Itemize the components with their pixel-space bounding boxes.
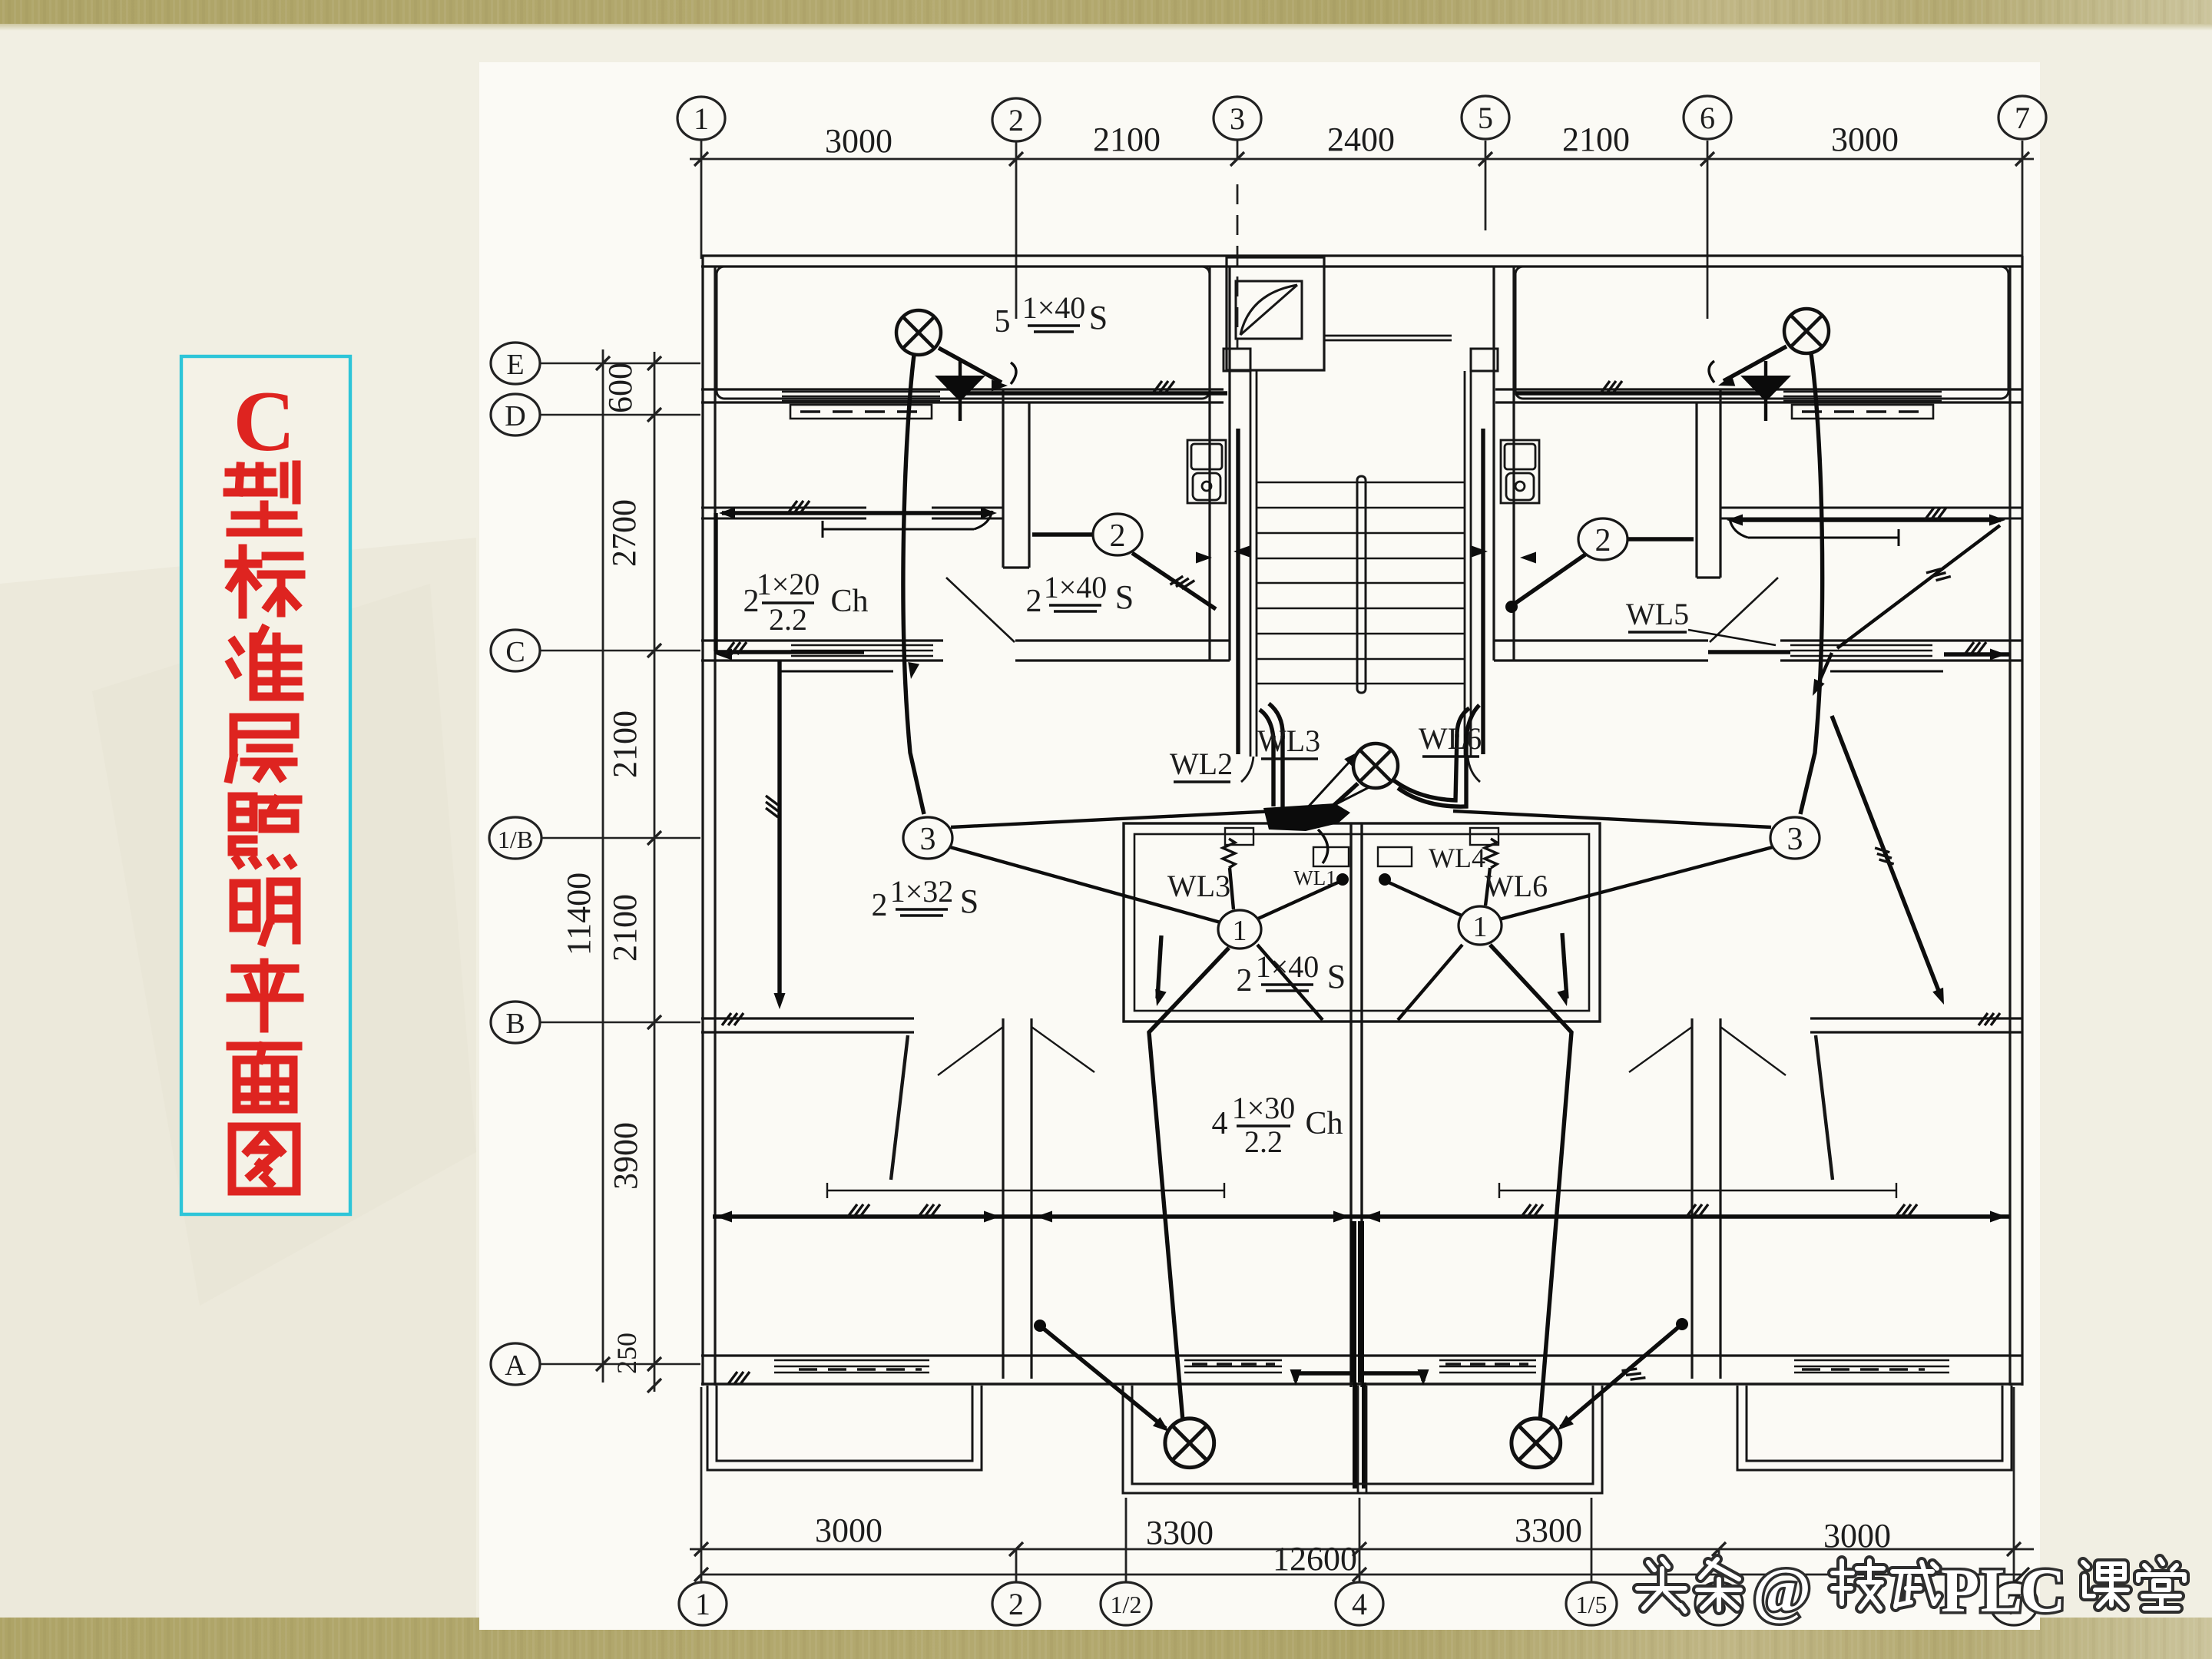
svg-text:WL1: WL1 <box>1293 866 1336 889</box>
svg-text:@: @ <box>1753 1555 1811 1625</box>
svg-text:3: 3 <box>1230 101 1245 136</box>
svg-text:S: S <box>1089 299 1108 336</box>
svg-text:2100: 2100 <box>606 894 644 962</box>
svg-text:2: 2 <box>1026 584 1042 619</box>
svg-text:1×30: 1×30 <box>1232 1091 1296 1125</box>
svg-text:B: B <box>505 1008 525 1040</box>
svg-text:3300: 3300 <box>1146 1514 1214 1551</box>
svg-text:1×40: 1×40 <box>1044 570 1108 604</box>
svg-text:1/2: 1/2 <box>1111 1591 1142 1618</box>
svg-text:5: 5 <box>995 304 1011 339</box>
svg-text:1: 1 <box>694 101 709 136</box>
svg-text:1/B: 1/B <box>498 826 533 853</box>
svg-text:S: S <box>1327 958 1346 995</box>
svg-text:6: 6 <box>1700 101 1715 135</box>
svg-text:Ch: Ch <box>830 584 868 619</box>
svg-text:4: 4 <box>1212 1106 1228 1141</box>
svg-text:1: 1 <box>1233 915 1247 947</box>
svg-text:2: 2 <box>1008 1587 1024 1621</box>
svg-text:L: L <box>1981 1555 2023 1625</box>
svg-text:7: 7 <box>2015 101 2030 135</box>
svg-text:A: A <box>505 1349 526 1382</box>
svg-text:2: 2 <box>872 888 888 923</box>
svg-text:C: C <box>2020 1555 2065 1625</box>
svg-text:2400: 2400 <box>1327 121 1395 158</box>
svg-text:S: S <box>960 882 979 920</box>
svg-text:S: S <box>1115 578 1134 616</box>
svg-text:WL4: WL4 <box>1429 843 1485 873</box>
svg-text:2700: 2700 <box>605 499 643 567</box>
svg-text:C: C <box>505 636 525 668</box>
svg-text:1: 1 <box>1473 911 1488 943</box>
svg-text:2100: 2100 <box>1562 121 1630 158</box>
svg-text:1: 1 <box>695 1587 710 1621</box>
svg-text:WL3: WL3 <box>1257 724 1320 758</box>
svg-text:3900: 3900 <box>607 1122 644 1190</box>
svg-text:C: C <box>233 374 296 469</box>
svg-text:WL6: WL6 <box>1485 869 1548 903</box>
svg-text:3000: 3000 <box>1831 121 1899 158</box>
svg-text:3: 3 <box>1787 822 1803 857</box>
svg-text:1×40: 1×40 <box>1022 290 1086 325</box>
svg-text:2.2: 2.2 <box>1244 1124 1283 1159</box>
svg-text:E: E <box>506 349 524 381</box>
svg-text:WL5: WL5 <box>1626 597 1689 631</box>
svg-text:1×32: 1×32 <box>890 874 954 909</box>
svg-text:1×40: 1×40 <box>1256 949 1320 984</box>
svg-text:2: 2 <box>1110 518 1126 554</box>
svg-text:1/5: 1/5 <box>1576 1591 1608 1618</box>
svg-text:WL6: WL6 <box>1419 721 1482 756</box>
svg-text:Ch: Ch <box>1305 1106 1343 1141</box>
svg-text:P: P <box>1941 1555 1979 1625</box>
svg-text:2: 2 <box>1008 103 1024 137</box>
svg-text:2.2: 2.2 <box>769 602 807 637</box>
svg-text:2100: 2100 <box>1093 121 1161 158</box>
svg-text:3300: 3300 <box>1515 1512 1582 1549</box>
svg-text:WL3: WL3 <box>1167 869 1230 903</box>
svg-text:4: 4 <box>1352 1587 1367 1621</box>
svg-text:3000: 3000 <box>1823 1517 1891 1555</box>
svg-text:3000: 3000 <box>825 122 892 160</box>
svg-text:2: 2 <box>1595 523 1611 558</box>
svg-text:3000: 3000 <box>815 1512 882 1549</box>
svg-text:1×20: 1×20 <box>757 567 820 601</box>
svg-text:600: 600 <box>601 363 639 413</box>
svg-text:3: 3 <box>920 822 936 857</box>
svg-text:5: 5 <box>1478 101 1493 135</box>
svg-text:12600: 12600 <box>1273 1540 1357 1578</box>
svg-text:250: 250 <box>611 1333 642 1374</box>
svg-text:11400: 11400 <box>560 873 598 955</box>
svg-text:D: D <box>505 400 525 432</box>
svg-text:2: 2 <box>1237 963 1253 998</box>
svg-text:WL2: WL2 <box>1170 747 1233 781</box>
svg-text:2100: 2100 <box>606 710 644 778</box>
